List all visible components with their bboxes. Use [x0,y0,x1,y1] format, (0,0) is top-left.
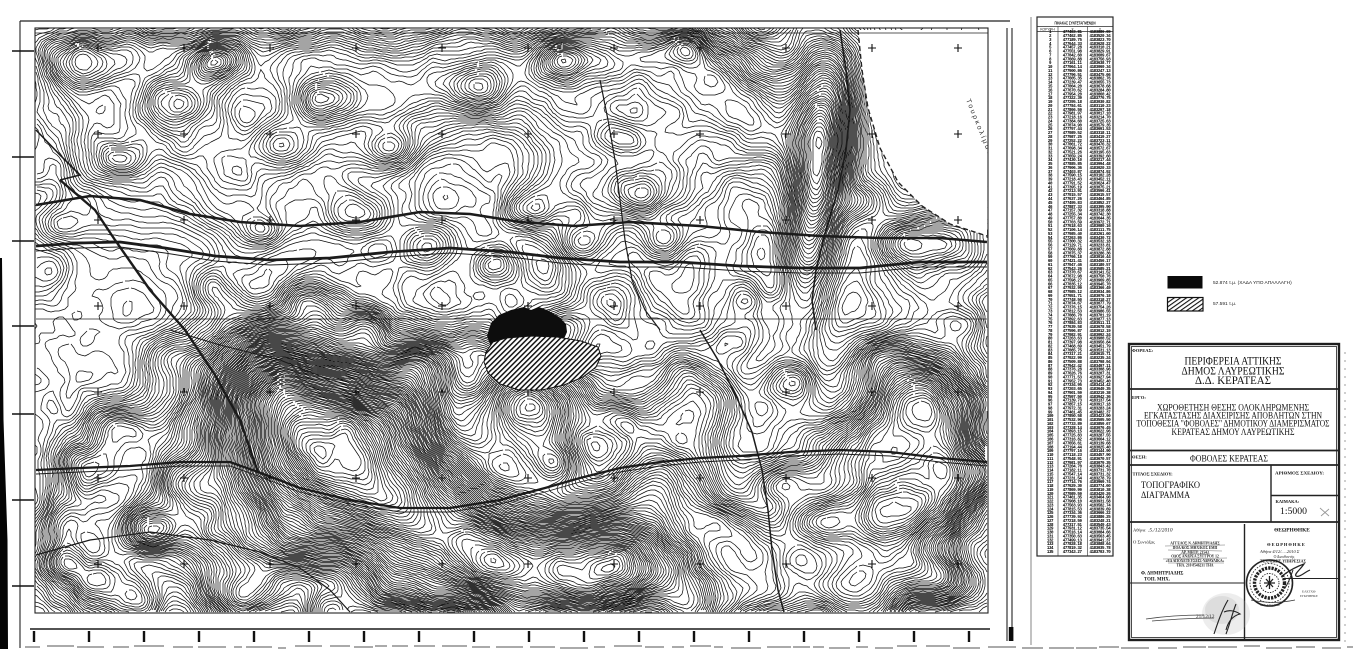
svg-text:ΤΟΠΟΘΕΣΙΑ "ΦΟΒΟΛΕΣ" ΔΗΜΟΤΙΚΟΥ: ΤΟΠΟΘΕΣΙΑ "ΦΟΒΟΛΕΣ" ΔΗΜΟΤΙΚΟΥ ΔΙΑΜΕΡΙΣΜΑ… [1137,419,1330,429]
svg-text:ΤΕΧΝΙΚΗΣ ΥΠΗΡΕΣΙΑΣ: ΤΕΧΝΙΚΗΣ ΥΠΗΡΕΣΙΑΣ [1260,559,1307,564]
svg-text:ΤΟΠ. ΜΗΧ.: ΤΟΠ. ΜΗΧ. [1144,578,1170,583]
svg-text:Φ. ΔΗΜΗΤΡΙΑΔΗΣ: Φ. ΔΗΜΗΤΡΙΑΔΗΣ [1141,572,1183,577]
svg-text:135: 135 [1047,551,1054,555]
svg-text:477343.27: 477343.27 [1063,551,1083,555]
svg-text:4183703.70: 4183703.70 [1090,551,1112,555]
svg-text:ΚΛΙΜΑΚΑ:: ΚΛΙΜΑΚΑ: [1276,499,1300,504]
svg-text:1:5000: 1:5000 [1280,506,1308,516]
svg-text:ΘΕΩΡΗΘΗΚΕ: ΘΕΩΡΗΘΗΚΕ [1274,528,1310,534]
svg-text:.5./12/2010: .5./12/2010 [1148,528,1173,534]
svg-text:ΚΟΡΥΦΗ: ΚΟΡΥΦΗ [1040,27,1055,31]
svg-text:ΠΙΝΑΚΑΣ ΣΥΝΤΕΤΑΓΜΕΝΩΝ: ΠΙΝΑΚΑΣ ΣΥΝΤΕΤΑΓΜΕΝΩΝ [1055,20,1096,25]
svg-text:ΔΙΑΓΡΑΜΜΑ: ΔΙΑΓΡΑΜΜΑ [1141,490,1190,501]
svg-text:Θ Ε Ω Ρ Η Θ Η Κ Ε: Θ Ε Ω Ρ Η Θ Η Κ Ε [1267,542,1305,547]
svg-text:ΘΕΣΗ:: ΘΕΣΗ: [1132,454,1147,459]
svg-text:ΕΡΓΟ:: ΕΡΓΟ: [1132,395,1146,400]
svg-text:ΕΓΚΡΙΘΗΚΕ: ΕΓΚΡΙΘΗΚΕ [1300,594,1318,598]
svg-text:52.874 τ.μ. (ΧΑΔΑ ΥΠΟ ΑΠΑΛΛΑΓΗ: 52.874 τ.μ. (ΧΑΔΑ ΥΠΟ ΑΠΑΛΛΑΓΗ) [1213,280,1292,286]
svg-text:ΚΕΡΑΤΕΑΣ ΔΗΜΟΥ ΛΑΥΡΕΩΤΙΚΗΣ: ΚΕΡΑΤΕΑΣ ΔΗΜΟΥ ΛΑΥΡΕΩΤΙΚΗΣ [1172,428,1295,438]
svg-text:ΤΗΛ. 210 8546231 ΤΗΛ: ΤΗΛ. 210 8546231 ΤΗΛ [1176,564,1213,568]
svg-text:ΑΓΓΕΛΟΣ Ν. ΔΗΜΗΤΡΙΑΔΗΣ: ΑΓΓΕΛΟΣ Ν. ΔΗΜΗΤΡΙΑΔΗΣ [1170,542,1220,546]
svg-text:Αθήνα 4/12/.....2010 Σ: Αθήνα 4/12/.....2010 Σ [1259,549,1300,554]
svg-text:ΑΡΙΘΜΟΣ ΣΧΕΔΙΟΥ:: ΑΡΙΘΜΟΣ ΣΧΕΔΙΟΥ: [1275,471,1325,476]
svg-text:Χ. ΣΑΜΑΡΑΣ: Χ. ΣΑΜΑΡΑΣ [1260,603,1280,607]
svg-text:Αθήνα: Αθήνα [1133,528,1146,533]
svg-text:21/12/12: 21/12/12 [1196,614,1215,620]
svg-text:ΦΟΒΟΛΕΣ ΚΕΡΑΤΕΑΣ: ΦΟΒΟΛΕΣ ΚΕΡΑΤΕΑΣ [1190,454,1268,465]
svg-text:Δ.Δ. ΚΕΡΑΤΕΑΣ: Δ.Δ. ΚΕΡΑΤΕΑΣ [1195,373,1271,387]
svg-text:«ΕΔ ΑΠΟΧΕΤΕΥΣΕΙΣ-ΥΔΡΑΥΛΙΚΑ»: «ΕΔ ΑΠΟΧΕΤΕΥΣΕΙΣ-ΥΔΡΑΥΛΙΚΑ» [1166,559,1225,563]
svg-text:ΕΛΕΓΧΘ: ΕΛΕΓΧΘ [1302,590,1316,594]
svg-text:ΦΟΡΕΑΣ:: ΦΟΡΕΑΣ: [1132,348,1154,353]
svg-text:Ο Συντάξας: Ο Συντάξας [1133,540,1155,545]
svg-text:57.591 τ.μ.: 57.591 τ.μ. [1213,301,1236,307]
svg-text:ΠΟΛ/ΚΟΣ ΜΗΧ/ΚΟΣ ΕΜΠ: ΠΟΛ/ΚΟΣ ΜΗΧ/ΚΟΣ ΕΜΠ [1173,546,1218,550]
svg-text:ΤΙΤΛΟΣ ΣΧΕΔΙΟΥ:: ΤΙΤΛΟΣ ΣΧΕΔΙΟΥ: [1133,472,1174,477]
